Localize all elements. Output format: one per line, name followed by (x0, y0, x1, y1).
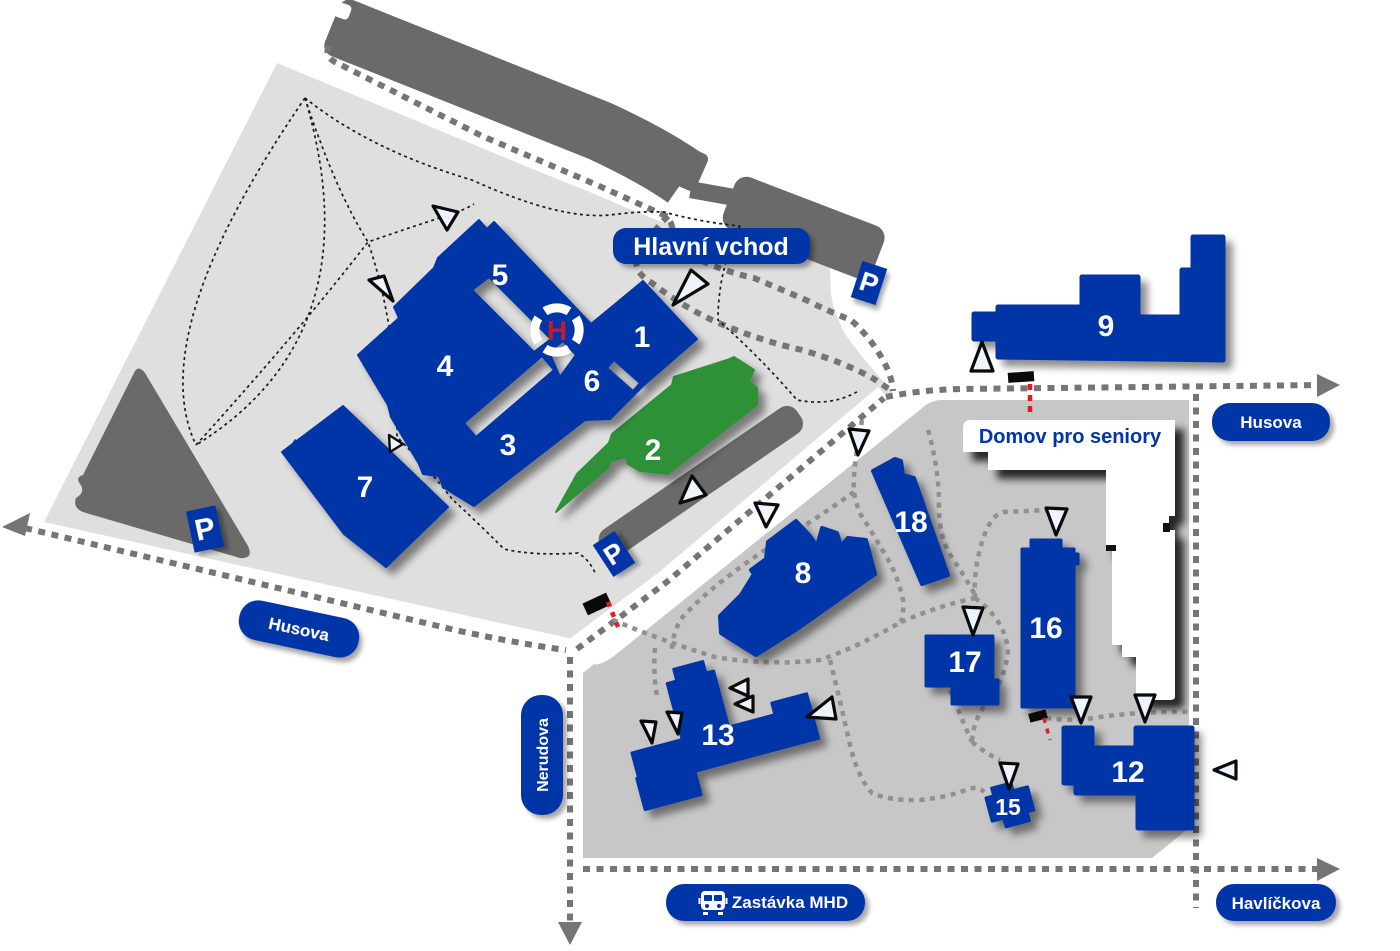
svg-text:18: 18 (894, 506, 927, 539)
svg-text:9: 9 (1098, 310, 1115, 343)
svg-text:Husova: Husova (1240, 413, 1302, 432)
svg-text:4: 4 (437, 350, 454, 383)
svg-text:H: H (547, 315, 567, 346)
svg-text:15: 15 (995, 794, 1021, 820)
svg-text:7: 7 (357, 471, 374, 504)
svg-text:6: 6 (584, 365, 601, 398)
svg-text:Domov pro seniory: Domov pro seniory (979, 426, 1162, 448)
svg-text:Havlíčkova: Havlíčkova (1232, 894, 1321, 913)
svg-text:13: 13 (701, 719, 734, 752)
svg-text:3: 3 (500, 429, 517, 462)
svg-text:Zastávka MHD: Zastávka MHD (732, 893, 848, 912)
svg-text:12: 12 (1111, 756, 1144, 789)
svg-text:17: 17 (948, 646, 981, 679)
svg-text:5: 5 (492, 259, 509, 292)
svg-text:2: 2 (645, 434, 662, 467)
svg-text:16: 16 (1029, 612, 1062, 645)
svg-text:1: 1 (634, 321, 651, 354)
svg-text:Nerudova: Nerudova (535, 718, 552, 792)
svg-text:Hlavní vchod: Hlavní vchod (633, 233, 789, 261)
svg-text:8: 8 (795, 557, 812, 590)
